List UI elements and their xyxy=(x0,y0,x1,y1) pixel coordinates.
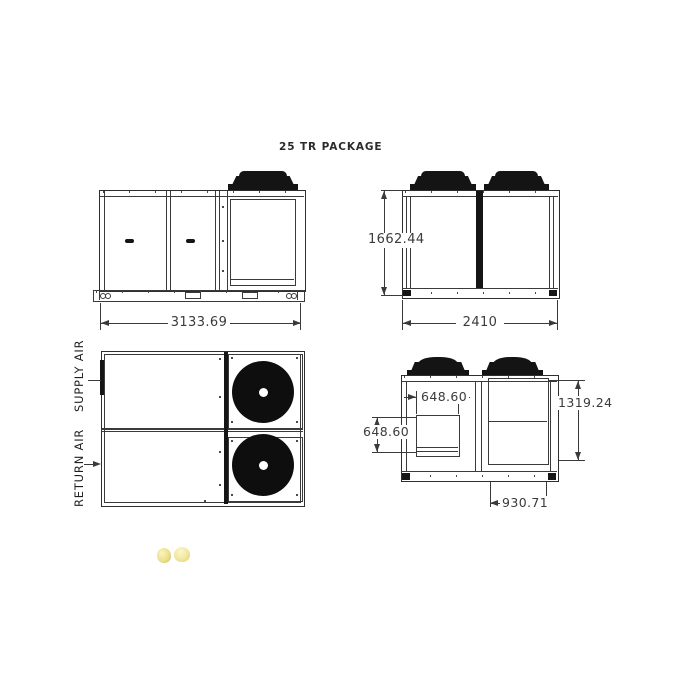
side-top-ticks xyxy=(103,191,301,193)
plan-section-divider xyxy=(101,431,303,432)
arrowhead-icon xyxy=(549,320,557,326)
fan-hub-icon xyxy=(259,388,268,397)
fastener-dot xyxy=(219,451,221,453)
fan-cowl-icon xyxy=(239,171,287,177)
fastener-dot xyxy=(222,240,224,242)
condenser-coil-outline xyxy=(230,199,296,286)
drawing-title: 25 TR PACKAGE xyxy=(279,141,383,153)
end-base-ticks xyxy=(404,475,554,477)
side-top-band-line xyxy=(99,196,304,197)
end-frame-line xyxy=(550,382,551,472)
fastener-dot xyxy=(296,357,298,359)
fastener-dot xyxy=(231,421,233,423)
dim-opening-width: 648.60 xyxy=(419,390,469,404)
end-partition-line xyxy=(475,382,476,472)
front-center-mullion xyxy=(476,191,483,288)
watermark-blob-icon xyxy=(156,547,172,564)
base-foot-block xyxy=(402,473,410,480)
door-handle-icon xyxy=(125,239,134,243)
fastener-dot xyxy=(231,440,233,442)
arrowhead-icon xyxy=(575,452,581,460)
drawing-canvas: 25 TR PACKAGE xyxy=(0,0,700,700)
arrowhead-icon xyxy=(293,320,301,326)
fastener-dot xyxy=(219,396,221,398)
dim-condenser-width: 930.71 xyxy=(500,496,548,510)
base-foot-block xyxy=(549,290,557,296)
fan-cowl-icon xyxy=(488,176,545,185)
extension-line xyxy=(557,300,558,330)
supply-air-label: SUPPLY AIR xyxy=(72,342,84,412)
end-base-line xyxy=(401,471,557,472)
condenser-coil-line xyxy=(488,421,547,422)
arrowhead-icon xyxy=(381,191,387,199)
fan-cowl-icon xyxy=(495,171,538,177)
fan-cowl-icon xyxy=(493,357,532,364)
base-foot-block xyxy=(403,290,411,296)
fastener-dot xyxy=(222,206,224,208)
front-frame-line xyxy=(549,197,550,288)
end-partition-line xyxy=(481,382,482,472)
watermark-blob-icon xyxy=(174,547,190,562)
fastener-dot xyxy=(231,357,233,359)
base-rail-end-line xyxy=(297,290,298,300)
side-panel-divider-line xyxy=(215,191,216,290)
fan-cowl-icon xyxy=(414,176,472,185)
arrowhead-icon xyxy=(575,381,581,389)
dim-condenser-height: 1319.24 xyxy=(556,396,610,410)
arrowhead-icon xyxy=(101,320,109,326)
leader-line xyxy=(88,380,101,381)
return-air-label: RETURN AIR xyxy=(72,437,84,507)
fan-cowl-icon xyxy=(418,357,458,364)
front-base-line xyxy=(402,288,558,289)
extension-line xyxy=(559,460,585,461)
extension-line xyxy=(372,452,416,453)
arrowhead-icon xyxy=(381,287,387,295)
fastener-dot xyxy=(219,358,221,360)
dim-overall-height: 1662.44 xyxy=(366,233,422,248)
fastener-dot xyxy=(296,421,298,423)
fan-cowl-icon xyxy=(232,176,294,185)
fastener-dot xyxy=(219,484,221,486)
arrowhead-icon xyxy=(374,444,380,452)
dim-overall-length: 3133.69 xyxy=(168,316,230,331)
arrowhead-icon xyxy=(403,320,411,326)
fastener-dot xyxy=(222,270,224,272)
dimension-line xyxy=(578,381,579,460)
arrowhead-icon xyxy=(408,394,416,400)
fastener-dot xyxy=(204,500,206,502)
condenser-coil-line xyxy=(230,279,294,280)
door-handle-icon xyxy=(186,239,195,243)
base-hole-icon xyxy=(105,293,111,299)
forklift-slot xyxy=(185,292,201,299)
base-foot-block xyxy=(548,473,556,480)
side-panel-divider-line xyxy=(166,191,167,290)
side-panel-divider-line xyxy=(219,191,220,290)
front-frame-line xyxy=(553,197,554,288)
fastener-dot xyxy=(231,494,233,496)
fan-cowl-icon xyxy=(421,171,465,177)
opening-track-line xyxy=(416,451,458,452)
dim-overall-width: 2410 xyxy=(456,316,504,331)
extension-line xyxy=(381,295,402,296)
forklift-slot xyxy=(242,292,258,299)
opening-track-line xyxy=(416,447,458,448)
side-condenser-divider-line xyxy=(227,191,228,290)
supply-air-opening xyxy=(100,360,104,395)
dim-opening-height: 648.60 xyxy=(361,425,411,439)
side-left-frame-line xyxy=(104,191,105,290)
fastener-dot xyxy=(296,494,298,496)
side-panel-divider-line xyxy=(170,191,171,290)
extension-line xyxy=(416,391,417,414)
fan-hub-icon xyxy=(259,461,268,470)
front-base-ticks xyxy=(405,292,555,294)
arrowhead-icon xyxy=(490,500,498,506)
base-hole-icon xyxy=(291,293,297,299)
fastener-dot xyxy=(296,440,298,442)
arrowhead-icon xyxy=(93,461,101,467)
